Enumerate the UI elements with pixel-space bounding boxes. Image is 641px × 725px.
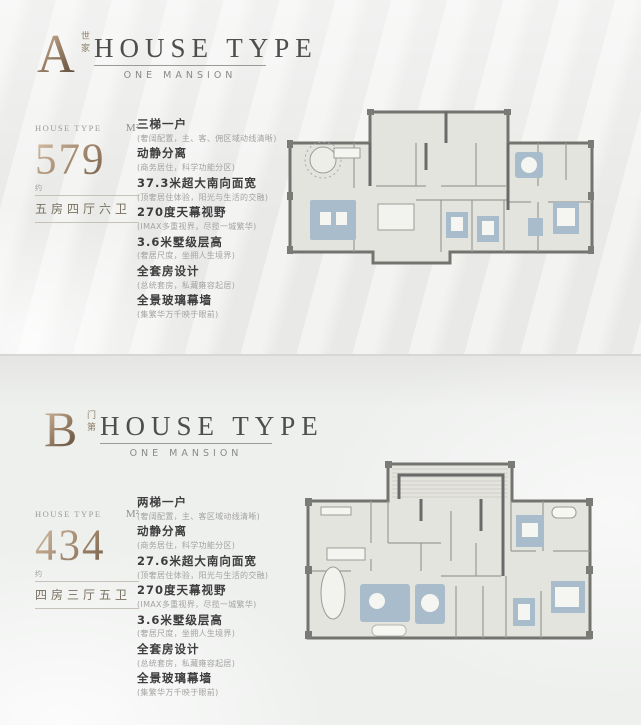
feature-title: 37.3米超大南向面宽 [137, 177, 295, 191]
chaise-lounge [372, 625, 406, 636]
title-underline-a [94, 65, 266, 66]
dining-table [378, 204, 414, 230]
floorplan-a [276, 90, 610, 330]
feature-item: 270度天幕视野 (IMAX多重视界，尽揽一城繁华) [137, 206, 295, 231]
panel-house-type-a: A 世家 HOUSE TYPE ONE MANSION HOUSE TYPE M… [0, 0, 641, 354]
panel-house-type-b: B 门第 HOUSE TYPE ONE MANSION HOUSE TYPE M… [0, 354, 641, 725]
approx-label-a: 约 [35, 183, 139, 193]
feature-title: 全景玻璃幕墙 [137, 294, 295, 308]
terrace-hatch [392, 468, 508, 499]
feature-desc: (集繁华万千映于眼前) [137, 688, 295, 698]
area-stats-b: HOUSE TYPE M² 434 约 四房三厅五卫 [35, 508, 139, 609]
kitchen-island [334, 148, 360, 158]
round-dining-table [310, 147, 336, 173]
house-type-title-a: HOUSE TYPE [94, 33, 318, 64]
kitchen-island [327, 548, 365, 560]
feature-title: 动静分离 [137, 525, 295, 539]
room-config-a: 五房四厅六卫 [35, 195, 139, 223]
feature-title: 三梯一户 [137, 118, 295, 132]
feature-item: 动静分离 (商务居住，科学功能分区) [137, 525, 295, 550]
feature-item: 两梯一户 (奢阔配置，主、客区域动线清晰) [137, 496, 295, 521]
area-label-b: HOUSE TYPE [35, 509, 102, 519]
feature-title: 270度天幕视野 [137, 584, 295, 598]
area-value-a: 579 [35, 137, 139, 182]
title-underline-b [100, 443, 272, 444]
feature-item: 270度天幕视野 (IMAX多重视界，尽揽一城繁华) [137, 584, 295, 609]
house-type-subtitle-a: ONE MANSION [94, 70, 266, 81]
kitchen-counter [321, 507, 351, 515]
floorplan-b [291, 451, 601, 656]
area-label-row-b: HOUSE TYPE M² [35, 508, 139, 520]
feature-desc: (总统套房，私藏雍容起居) [137, 659, 295, 669]
feature-desc: (奢居尺度，坐拥人生境界) [137, 251, 295, 261]
feature-title: 两梯一户 [137, 496, 295, 510]
approx-label-b: 约 [35, 569, 139, 579]
feature-title: 3.6米墅级层高 [137, 614, 295, 628]
feature-item: 动静分离 (商务居住，科学功能分区) [137, 147, 295, 172]
room-config-b: 四房三厅五卫 [35, 581, 139, 609]
feature-title: 动静分离 [137, 147, 295, 161]
feature-desc: (总统套房，私藏雍容起居) [137, 281, 295, 291]
feature-title: 270度天幕视野 [137, 206, 295, 220]
feature-item: 3.6米墅级层高 (奢居尺度，坐拥人生境界) [137, 236, 295, 261]
feature-item: 全景玻璃幕墙 (集繁华万千映于眼前) [137, 294, 295, 319]
feature-list-a: 三梯一户 (奢阔配置，主、客、佣区域动线清晰) 动静分离 (商务居住，科学功能分… [137, 118, 295, 324]
feature-desc: (商务居住，科学功能分区) [137, 163, 295, 173]
bathtub [552, 507, 576, 518]
feature-desc: (顶奢居住体验，阳光与生活的交融) [137, 571, 295, 581]
house-type-title-b: HOUSE TYPE [100, 411, 324, 442]
house-type-letter-a: A [37, 26, 75, 81]
feature-title: 全景玻璃幕墙 [137, 672, 295, 686]
feature-desc: (IMAX多重视界，尽揽一城繁华) [137, 600, 295, 610]
feature-desc: (奢阔配置，主、客、佣区域动线清晰) [137, 134, 295, 144]
area-label-row-a: HOUSE TYPE M² [35, 122, 139, 134]
feature-item: 37.3米超大南向面宽 (顶奢居住体验，阳光与生活的交融) [137, 177, 295, 202]
feature-item: 全套房设计 (总统套房，私藏雍容起居) [137, 265, 295, 290]
feature-item: 三梯一户 (奢阔配置，主、客、佣区域动线清晰) [137, 118, 295, 143]
feature-list-b: 两梯一户 (奢阔配置，主、客区域动线清晰) 动静分离 (商务居住，科学功能分区)… [137, 496, 295, 702]
feature-item: 全套房设计 (总统套房，私藏雍容起居) [137, 643, 295, 668]
oval-dining-table [321, 567, 345, 619]
feature-item: 全景玻璃幕墙 (集繁华万千映于眼前) [137, 672, 295, 697]
feature-title: 全套房设计 [137, 265, 295, 279]
area-label-a: HOUSE TYPE [35, 123, 102, 133]
area-stats-a: HOUSE TYPE M² 579 约 五房四厅六卫 [35, 122, 139, 223]
feature-desc: (集繁华万千映于眼前) [137, 310, 295, 320]
feature-desc: (奢阔配置，主、客区域动线清晰) [137, 512, 295, 522]
area-value-b: 434 [35, 523, 139, 568]
feature-desc: (顶奢居住体验，阳光与生活的交融) [137, 193, 295, 203]
feature-item: 3.6米墅级层高 (奢居尺度，坐拥人生境界) [137, 614, 295, 639]
letter-tag-b: 门第 [84, 410, 97, 434]
feature-item: 27.6米超大南向面宽 (顶奢居住体验，阳光与生活的交融) [137, 555, 295, 580]
house-type-letter-b: B [44, 404, 77, 454]
feature-desc: (商务居住，科学功能分区) [137, 541, 295, 551]
feature-title: 全套房设计 [137, 643, 295, 657]
feature-desc: (奢居尺度，坐拥人生境界) [137, 629, 295, 639]
letter-tag-a: 世家 [78, 31, 91, 55]
feature-desc: (IMAX多重视界，尽揽一城繁华) [137, 222, 295, 232]
house-type-subtitle-b: ONE MANSION [100, 448, 272, 459]
feature-title: 27.6米超大南向面宽 [137, 555, 295, 569]
brochure-page: A 世家 HOUSE TYPE ONE MANSION HOUSE TYPE M… [0, 0, 641, 725]
feature-title: 3.6米墅级层高 [137, 236, 295, 250]
